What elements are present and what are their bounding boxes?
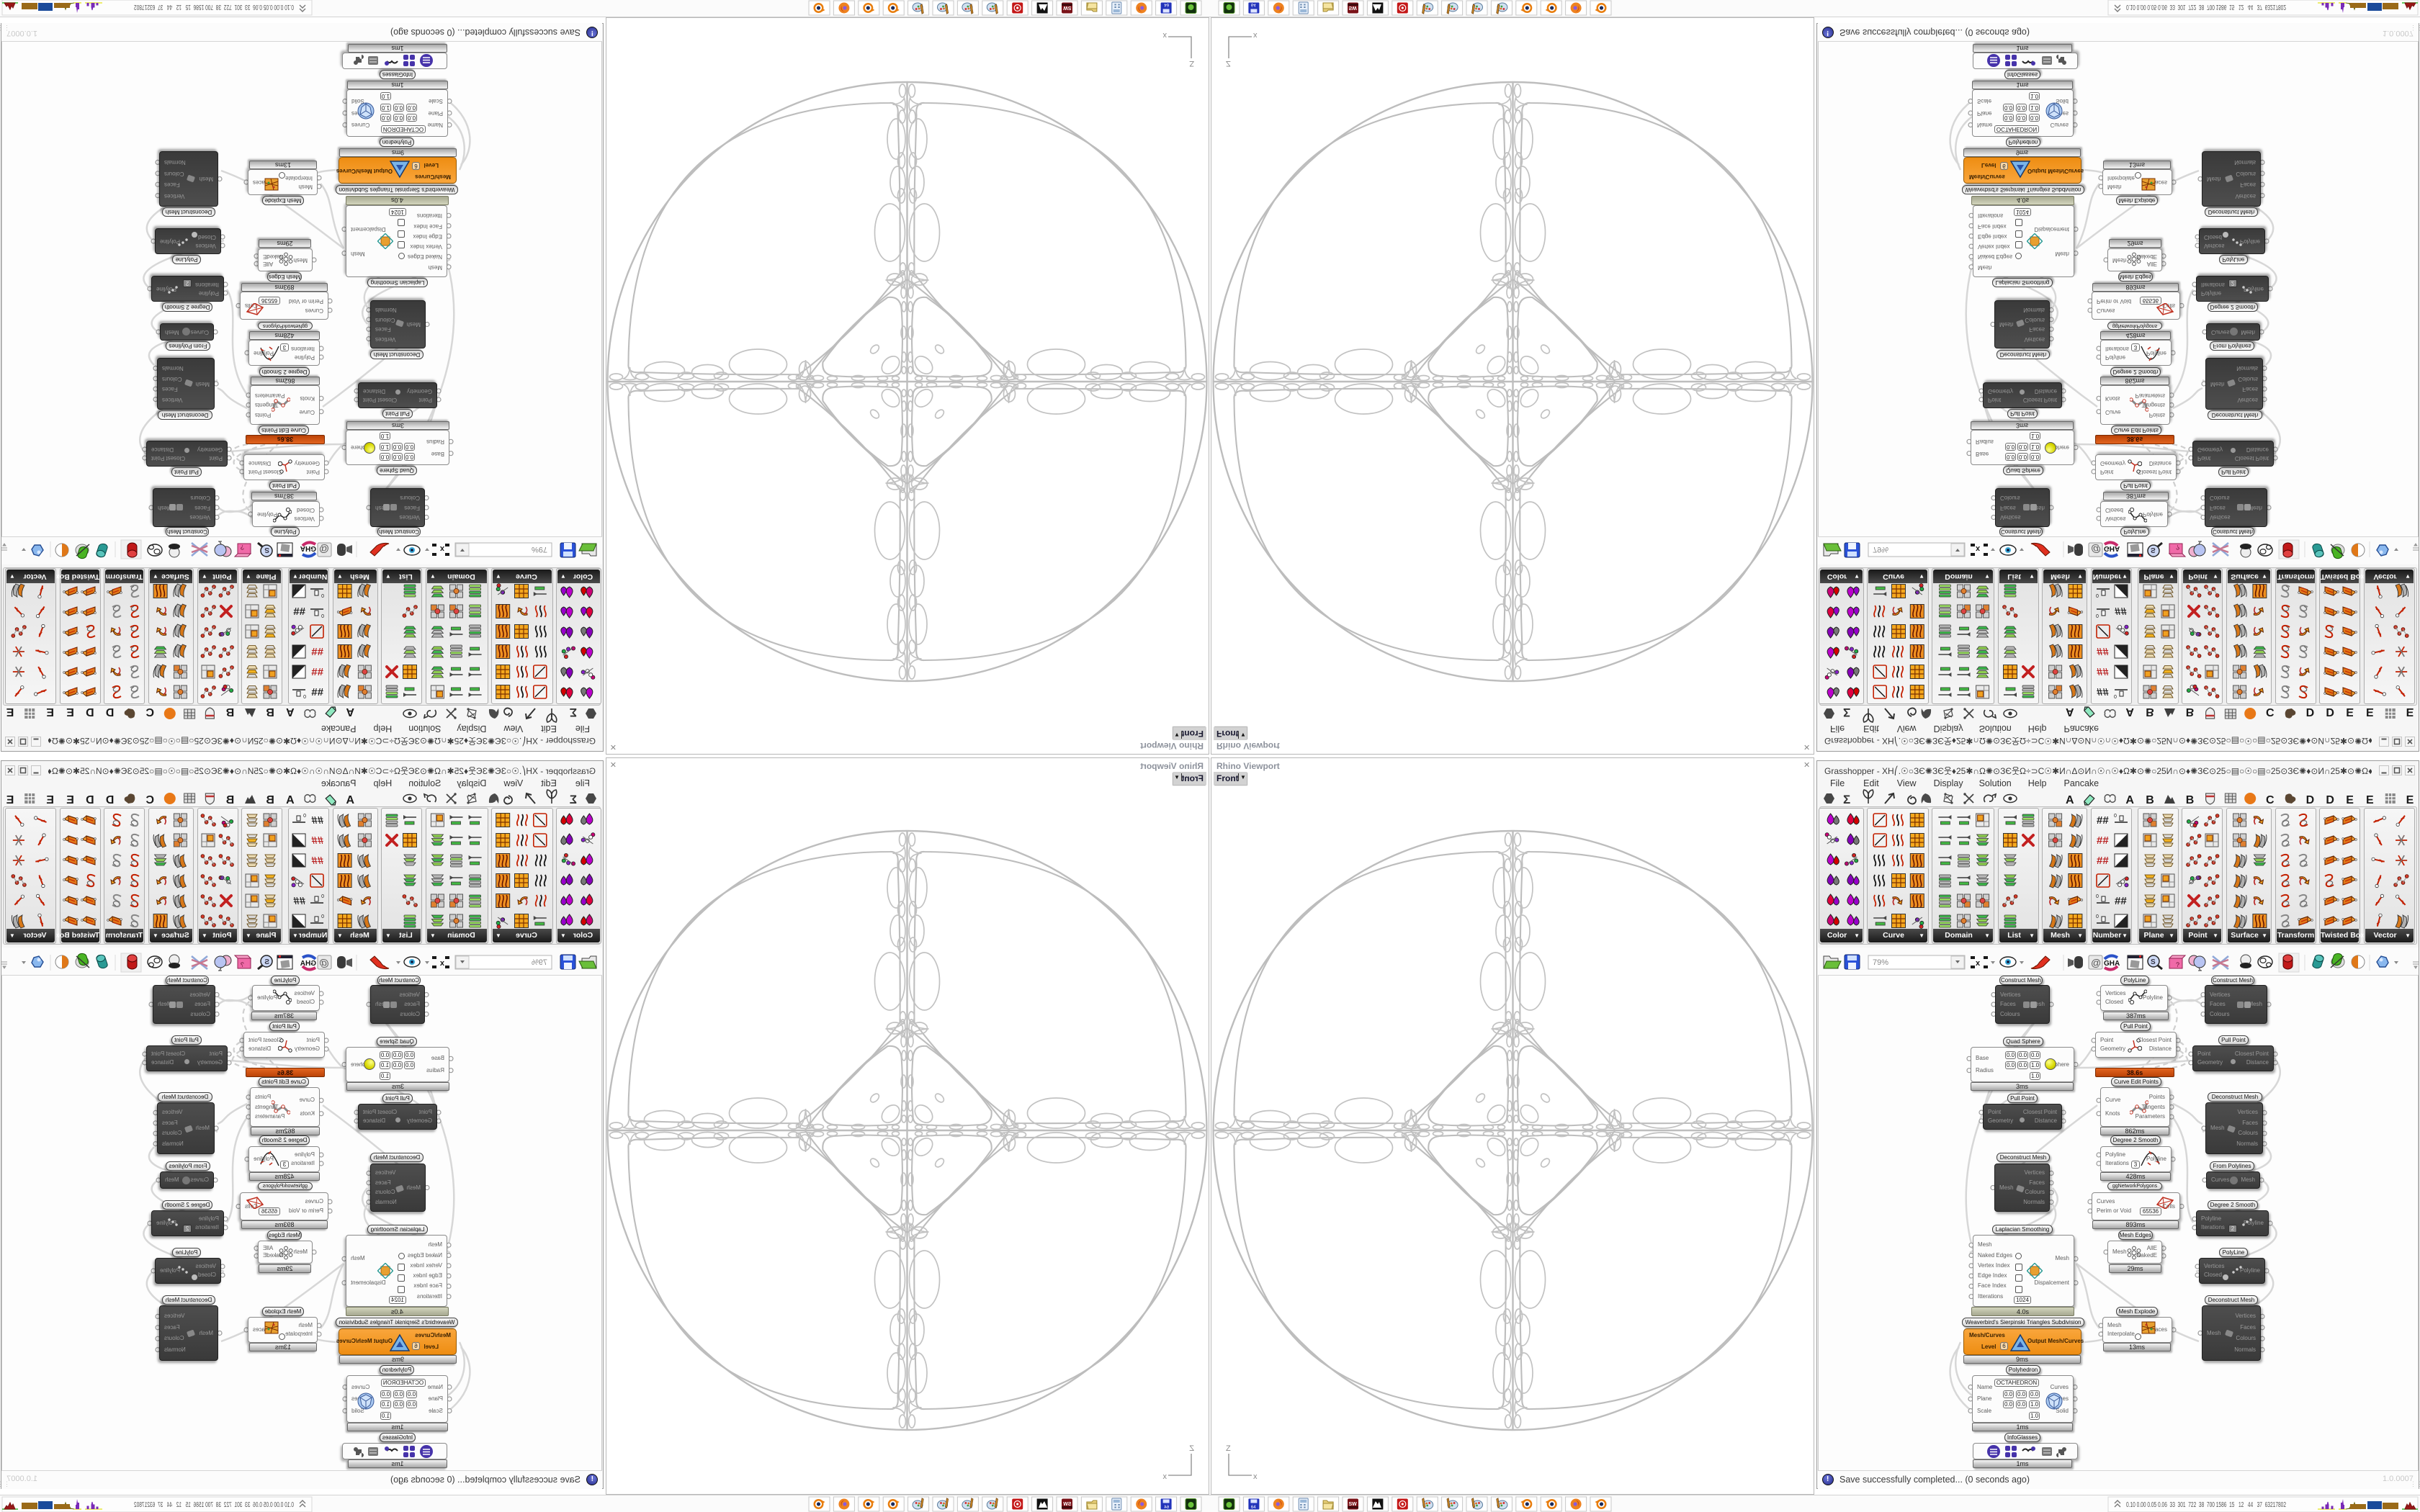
svg-text:x: x	[1976, 959, 1981, 968]
svg-text:0.10 0.00 0.05 0.06 33 301: 0.10 0.00 0.05 0.06 33 301 722 38 700 15…	[134, 3, 294, 11]
svg-text:B: B	[2186, 706, 2195, 718]
svg-text:SW: SW	[1063, 5, 1072, 10]
svg-text:x: x	[1162, 1472, 1167, 1481]
svg-text:E: E	[46, 794, 54, 806]
svg-text:D: D	[106, 706, 115, 718]
svg-text:E: E	[46, 706, 54, 718]
svg-text:E: E	[2366, 794, 2374, 806]
svg-text:##: ##	[2097, 855, 2109, 867]
svg-text:0: 0	[2096, 613, 2099, 618]
svg-text:A: A	[2066, 706, 2074, 718]
svg-text:?: ?	[241, 961, 244, 968]
svg-text:E: E	[6, 794, 14, 806]
svg-text:?: ?	[2176, 961, 2179, 968]
svg-text:Z: Z	[1189, 59, 1194, 68]
svg-text:GHA: GHA	[2104, 960, 2120, 968]
svg-text:64: 64	[1251, 1506, 1256, 1510]
svg-text:0.10 0.00 0.05 0.06 33 301: 0.10 0.00 0.05 0.06 33 301 722 38 700 15…	[134, 1501, 294, 1509]
svg-text:0: 0	[321, 894, 324, 899]
svg-text:0: 0	[2114, 814, 2117, 819]
svg-text:x: x	[1976, 544, 1981, 553]
svg-text:C: C	[2266, 706, 2275, 718]
svg-text:@: @	[2091, 544, 2101, 555]
svg-text:@: @	[319, 544, 329, 555]
svg-text:A: A	[346, 706, 354, 718]
svg-text:0: 0	[2096, 894, 2099, 899]
svg-text:E: E	[2406, 706, 2414, 718]
svg-text:##: ##	[2097, 685, 2109, 698]
svg-text:x: x	[439, 959, 444, 968]
svg-text:Z: Z	[1226, 59, 1231, 68]
svg-text:B: B	[2186, 794, 2195, 806]
svg-text:##: ##	[293, 605, 305, 617]
svg-text:##: ##	[293, 895, 305, 907]
svg-text:E: E	[2366, 706, 2374, 718]
svg-text:E: E	[2346, 706, 2354, 718]
svg-text:E: E	[66, 706, 74, 718]
svg-text:x: x	[1253, 31, 1258, 40]
svg-text:E: E	[2406, 794, 2414, 806]
svg-text:##: ##	[2097, 814, 2109, 827]
svg-text:Σ: Σ	[1843, 706, 1850, 719]
svg-text:E: E	[66, 794, 74, 806]
svg-text:SW: SW	[1063, 1502, 1072, 1507]
svg-text:0: 0	[2114, 693, 2117, 698]
svg-text:D: D	[2306, 706, 2315, 718]
svg-text:Σ: Σ	[570, 706, 577, 719]
svg-text:GHA: GHA	[300, 544, 316, 552]
svg-text:B: B	[2146, 706, 2154, 718]
svg-text:Z: Z	[1226, 1444, 1231, 1453]
svg-text:##: ##	[311, 855, 323, 867]
svg-text:E: E	[6, 706, 14, 718]
svg-text:S: S	[264, 546, 269, 554]
svg-text:64: 64	[1164, 1506, 1169, 1510]
svg-text:x: x	[1162, 31, 1167, 40]
svg-text:A: A	[2125, 706, 2134, 718]
svg-text:SW: SW	[1349, 5, 1358, 10]
svg-text:79%: 79%	[532, 958, 547, 967]
svg-text:A: A	[346, 794, 354, 806]
svg-text:0: 0	[321, 593, 324, 598]
svg-text:Z: Z	[1189, 1444, 1194, 1453]
svg-text:B: B	[266, 706, 274, 718]
svg-text:@: @	[319, 957, 329, 968]
svg-text:C: C	[145, 706, 154, 718]
svg-text:B: B	[226, 706, 235, 718]
svg-text:79%: 79%	[1873, 958, 1888, 967]
svg-text:##: ##	[311, 814, 323, 827]
svg-text:x: x	[1253, 1472, 1258, 1481]
svg-text:0: 0	[2096, 593, 2099, 598]
svg-text:79%: 79%	[1873, 545, 1888, 554]
svg-text:##: ##	[2097, 665, 2109, 678]
svg-text:B: B	[266, 794, 274, 806]
svg-text:A: A	[2125, 794, 2134, 806]
svg-text:D: D	[86, 706, 94, 718]
svg-text:B: B	[226, 794, 235, 806]
svg-text:C: C	[145, 794, 154, 806]
svg-text:0: 0	[303, 814, 306, 819]
svg-text:S: S	[2151, 958, 2156, 966]
svg-text:?: ?	[2176, 544, 2179, 551]
svg-text:A: A	[286, 706, 295, 718]
svg-text:##: ##	[2115, 895, 2127, 907]
svg-text:?: ?	[241, 544, 244, 551]
svg-text:B: B	[2146, 794, 2154, 806]
svg-text:##: ##	[311, 645, 323, 657]
svg-text:0.10 0.00 0.05 0.06 33 301: 0.10 0.00 0.05 0.06 33 301 722 38 700 15…	[2126, 3, 2286, 11]
svg-text:0: 0	[321, 914, 324, 919]
svg-text:##: ##	[2115, 605, 2127, 617]
svg-text:Σ: Σ	[1843, 793, 1850, 806]
svg-text:0: 0	[303, 693, 306, 698]
svg-text:@: @	[2091, 957, 2101, 968]
svg-text:##: ##	[2097, 645, 2109, 657]
svg-text:0.10 0.00 0.05 0.06 33 301: 0.10 0.00 0.05 0.06 33 301 722 38 700 15…	[2126, 1501, 2286, 1509]
svg-text:D: D	[86, 794, 94, 806]
svg-text:D: D	[2326, 706, 2334, 718]
svg-text:x: x	[439, 544, 444, 553]
svg-text:A: A	[2066, 794, 2074, 806]
svg-text:C: C	[2266, 794, 2275, 806]
svg-text:79%: 79%	[532, 545, 547, 554]
svg-text:D: D	[106, 794, 115, 806]
svg-text:64: 64	[1164, 2, 1169, 6]
svg-text:##: ##	[311, 665, 323, 678]
svg-text:0: 0	[321, 613, 324, 618]
svg-text:##: ##	[311, 834, 323, 847]
svg-text:D: D	[2306, 794, 2315, 806]
svg-text:SW: SW	[1349, 1502, 1358, 1507]
svg-text:E: E	[2346, 794, 2354, 806]
svg-text:A: A	[286, 794, 295, 806]
svg-text:##: ##	[311, 685, 323, 698]
svg-text:S: S	[2151, 546, 2156, 554]
svg-text:##: ##	[2097, 834, 2109, 847]
svg-text:D: D	[2326, 794, 2334, 806]
svg-text:GHA: GHA	[2104, 544, 2120, 552]
svg-text:Σ: Σ	[570, 793, 577, 806]
svg-text:S: S	[264, 958, 269, 966]
svg-text:0: 0	[2096, 914, 2099, 919]
svg-text:64: 64	[1251, 2, 1256, 6]
svg-text:GHA: GHA	[300, 960, 316, 968]
